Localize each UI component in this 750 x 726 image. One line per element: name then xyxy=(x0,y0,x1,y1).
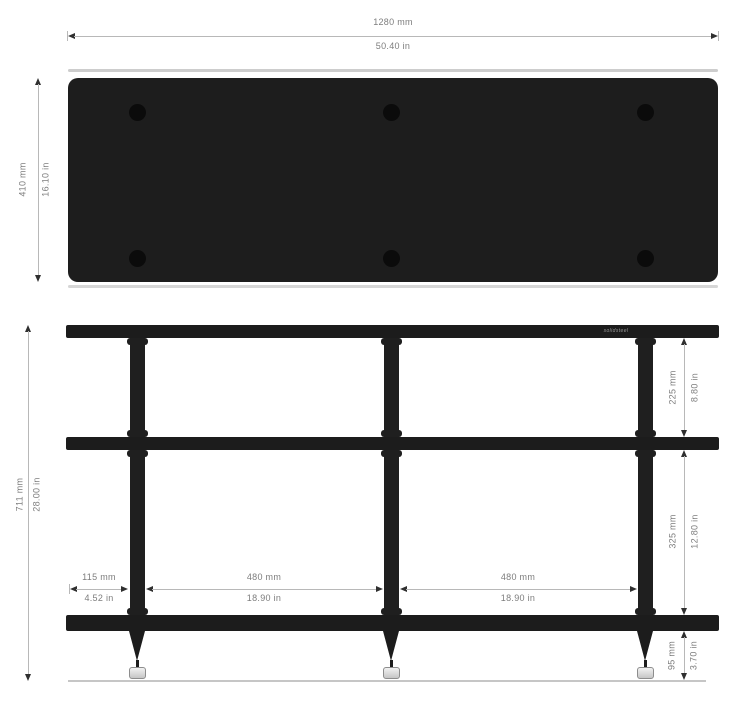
spike-shoe xyxy=(383,667,400,679)
shelf-front-edge xyxy=(68,69,718,72)
post-joint xyxy=(381,450,402,457)
spike-foot xyxy=(129,631,145,661)
foot-height-label-in: 3.70 in xyxy=(689,621,700,691)
spike-foot xyxy=(383,631,399,661)
post-center-lower xyxy=(384,450,399,615)
post-joint xyxy=(635,450,656,457)
dim-arrow-down-icon xyxy=(35,275,41,282)
bay-right-dim-line xyxy=(406,589,630,590)
foot-height-dim-line xyxy=(684,637,685,674)
rack-dimension-drawing: 1280 mm 50.40 in 410 mm 16.10 in 711 mm … xyxy=(0,0,750,726)
spike-tip xyxy=(136,660,139,667)
post-joint xyxy=(635,338,656,345)
post-joint xyxy=(381,430,402,437)
spike-foot xyxy=(637,631,653,661)
dim-arrow-down-icon xyxy=(681,608,687,615)
dim-arrow-right-icon xyxy=(711,33,718,39)
post-left-lower xyxy=(130,450,145,615)
top-depth-dim-line xyxy=(38,84,39,276)
spike-shoe xyxy=(129,667,146,679)
post-joint xyxy=(127,430,148,437)
upper-gap-label-mm: 225 mm xyxy=(668,353,679,423)
top-width-label-mm: 1280 mm xyxy=(293,17,493,28)
top-width-label-in: 50.40 in xyxy=(293,41,493,52)
dim-arrow-down-icon xyxy=(681,673,687,680)
upper-gap-dim-line xyxy=(684,344,685,431)
dim-extension-tick xyxy=(718,31,719,41)
post-joint xyxy=(635,608,656,615)
middle-shelf xyxy=(66,437,719,450)
shelf-rear-edge xyxy=(68,285,718,288)
mounting-hole xyxy=(383,250,400,267)
dim-arrow-down-icon xyxy=(681,430,687,437)
top-width-dim-line xyxy=(74,36,711,37)
mounting-hole xyxy=(129,104,146,121)
front-height-label-in: 28.00 in xyxy=(32,460,43,530)
side-offset-label-in: 4.52 in xyxy=(49,593,149,604)
spike-tip xyxy=(644,660,647,667)
lower-gap-dim-line xyxy=(684,456,685,609)
bottom-shelf xyxy=(66,615,719,631)
post-right-lower xyxy=(638,450,653,615)
post-right-upper xyxy=(638,338,653,437)
side-offset-label-mm: 115 mm xyxy=(49,572,149,583)
front-height-label-mm: 711 mm xyxy=(15,460,26,530)
mounting-hole xyxy=(129,250,146,267)
top-depth-label-in: 16.10 in xyxy=(41,145,52,215)
bay-right-label-mm: 480 mm xyxy=(468,572,568,583)
lower-gap-label-in: 12.80 in xyxy=(690,497,701,567)
post-joint xyxy=(127,338,148,345)
bay-left-label-in: 18.90 in xyxy=(214,593,314,604)
post-joint xyxy=(381,608,402,615)
post-joint xyxy=(127,450,148,457)
post-center-upper xyxy=(384,338,399,437)
mounting-hole xyxy=(637,104,654,121)
upper-gap-label-in: 8.80 in xyxy=(690,353,701,423)
mounting-hole xyxy=(383,104,400,121)
dim-arrow-right-icon xyxy=(630,586,637,592)
lower-gap-label-mm: 325 mm xyxy=(668,497,679,567)
mounting-hole xyxy=(637,250,654,267)
dim-arrow-right-icon xyxy=(376,586,383,592)
post-joint xyxy=(381,338,402,345)
spike-shoe xyxy=(637,667,654,679)
post-left-upper xyxy=(130,338,145,437)
foot-height-label-mm: 95 mm xyxy=(667,621,678,691)
top-depth-label-mm: 410 mm xyxy=(18,145,29,215)
post-joint xyxy=(635,430,656,437)
dim-arrow-right-icon xyxy=(121,586,128,592)
brand-logo: solidsteel xyxy=(596,327,636,336)
side-offset-dim-line xyxy=(76,589,122,590)
spike-tip xyxy=(390,660,393,667)
post-joint xyxy=(127,608,148,615)
bay-left-dim-line xyxy=(152,589,377,590)
bay-left-label-mm: 480 mm xyxy=(214,572,314,583)
ground-line xyxy=(68,680,706,682)
bay-right-label-in: 18.90 in xyxy=(468,593,568,604)
front-height-dim-line xyxy=(28,331,29,674)
dim-arrow-down-icon xyxy=(25,674,31,681)
